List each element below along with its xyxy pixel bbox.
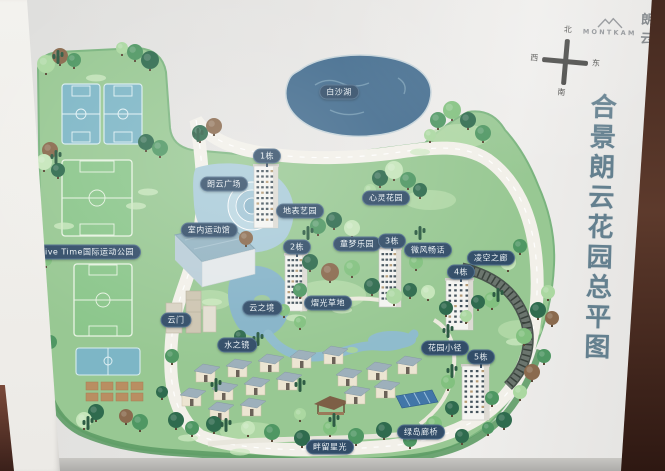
map-label-live-time-sports-park: Live Time国际运动公园: [33, 245, 141, 260]
compass-west: 西: [530, 54, 539, 63]
map-label-tongmeng-playground: 童梦乐园: [333, 237, 381, 252]
map-label-building-4: 4栋: [447, 265, 475, 280]
map-label-garden-path: 花园小径: [421, 341, 469, 356]
map-label-yunmen-gate: 云门: [161, 313, 192, 328]
map-label-shuizhijing: 水之镜: [217, 338, 257, 353]
map-label-baishahu-lake: 白沙湖: [319, 85, 359, 100]
map-label-dibiao-art-garden: 地表艺园: [276, 204, 324, 219]
floor-edge: [0, 458, 665, 471]
compass-south: 南: [557, 88, 566, 97]
map-label-building-1: 1栋: [253, 149, 281, 164]
map-label-lingkong-corridor: 凌空之廊: [467, 251, 515, 266]
site-plan-sign-photo: 白沙湖1栋朗云广场地表艺园室内运动馆Live Time国际运动公园心灵花园2栋童…: [0, 0, 665, 471]
map-label-yiguang-lawn: 熠光草地: [304, 296, 352, 311]
map-label-building-5: 5栋: [467, 350, 495, 365]
futsal-court: [76, 348, 140, 375]
map-label-langyun-plaza: 朗云广场: [200, 177, 248, 192]
map-label-building-3: 3栋: [378, 234, 406, 249]
map-label-xinling-garden: 心灵花园: [362, 191, 410, 206]
plan-title: 合景朗云花园总平图: [576, 93, 620, 364]
map-label-weifeng-changhua: 微风畅话: [404, 243, 452, 258]
mountain-icon: [597, 17, 623, 29]
white-sand-lake: [286, 55, 431, 136]
map-label-building-2: 2栋: [283, 240, 311, 255]
compass-east: 东: [592, 59, 601, 68]
map-label-indoor-sports-hall: 室内运动馆: [181, 223, 238, 238]
map-label-lvdao-gallery-bridge: 绿岛廊桥: [397, 425, 445, 440]
compass-north: 北: [563, 26, 572, 35]
map-label-yunzhijing: 云之境: [242, 301, 282, 316]
map-label-panliu-starlight: 畔留星光: [306, 440, 354, 455]
compass-rose: 北 南 东 西: [526, 23, 604, 101]
